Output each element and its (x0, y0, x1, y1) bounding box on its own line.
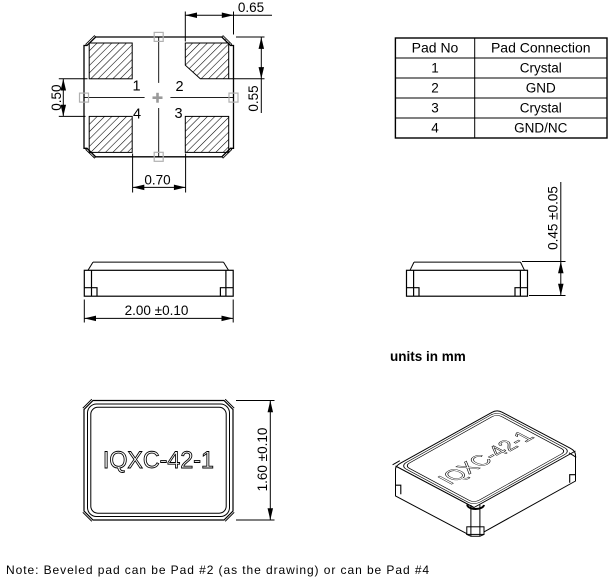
svg-text:1: 1 (132, 78, 140, 94)
svg-text:3: 3 (431, 101, 439, 116)
svg-text:Crystal: Crystal (520, 61, 562, 76)
svg-text:1.60 ±0.10: 1.60 ±0.10 (255, 428, 270, 492)
svg-text:4: 4 (133, 107, 141, 123)
svg-text:0.50: 0.50 (49, 84, 64, 110)
svg-text:units in mm: units in mm (390, 349, 466, 364)
svg-text:Pad No: Pad No (412, 40, 459, 56)
svg-text:1: 1 (431, 61, 439, 76)
svg-text:0.55: 0.55 (246, 85, 261, 111)
svg-text:4: 4 (431, 121, 439, 136)
svg-text:0.65: 0.65 (238, 0, 264, 15)
svg-text:2: 2 (431, 81, 439, 96)
svg-text:2.00 ±0.10: 2.00 ±0.10 (125, 303, 189, 318)
svg-text:Pad Connection: Pad Connection (491, 40, 591, 56)
svg-text:2: 2 (175, 79, 183, 95)
svg-text:0.70: 0.70 (144, 172, 170, 187)
svg-text:GND/NC: GND/NC (514, 121, 567, 136)
svg-text:GND: GND (526, 81, 556, 96)
svg-text:IQXC-42-1: IQXC-42-1 (103, 447, 214, 474)
svg-text:Note: Beveled pad can be Pad #: Note: Beveled pad can be Pad #2 (as the … (6, 563, 430, 577)
svg-text:0.45 ±0.05: 0.45 ±0.05 (546, 186, 561, 250)
svg-text:Crystal: Crystal (520, 101, 562, 116)
svg-text:3: 3 (174, 106, 182, 122)
